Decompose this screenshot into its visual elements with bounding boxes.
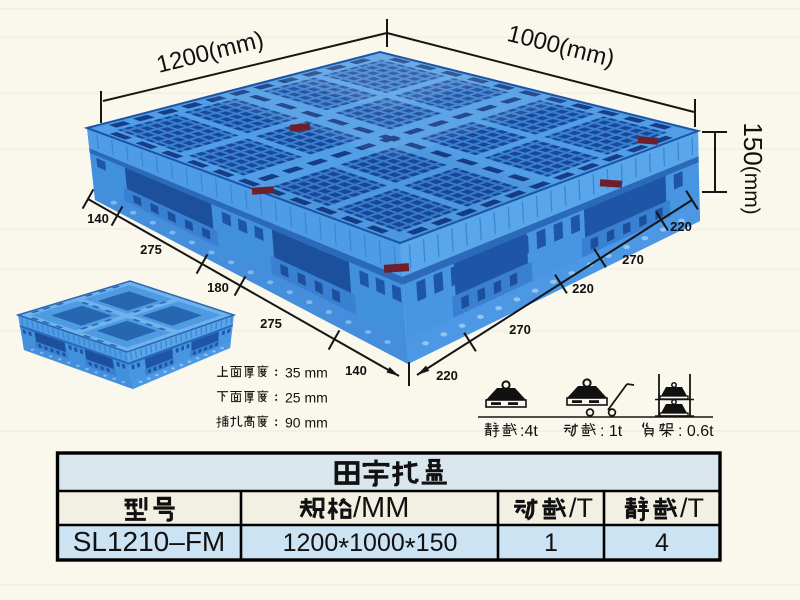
svg-text:220: 220 [670, 219, 692, 234]
svg-text:90 mm: 90 mm [285, 415, 328, 431]
svg-text:: 1t: : 1t [600, 423, 623, 440]
svg-text:/MM: /MM [353, 492, 409, 524]
svg-text:/T: /T [569, 493, 593, 523]
svg-text:140: 140 [87, 211, 109, 226]
svg-text:220: 220 [436, 368, 458, 383]
svg-text:150(mm): 150(mm) [738, 122, 768, 214]
svg-text:275: 275 [140, 242, 162, 257]
svg-text:: 0.6t: : 0.6t [678, 423, 714, 440]
svg-text::4t: :4t [520, 423, 538, 440]
svg-text:4: 4 [655, 529, 669, 557]
svg-text:SL1210–FM: SL1210–FM [73, 526, 226, 557]
svg-text:/T: /T [680, 493, 704, 523]
svg-text:180: 180 [207, 280, 229, 295]
svg-text:275: 275 [260, 316, 282, 331]
svg-text:270: 270 [622, 252, 644, 267]
svg-text:220: 220 [572, 281, 594, 296]
svg-text:35 mm: 35 mm [285, 365, 328, 381]
svg-text:270: 270 [509, 322, 531, 337]
svg-text:140: 140 [345, 363, 367, 378]
svg-text:1: 1 [544, 529, 558, 557]
svg-text:25 mm: 25 mm [285, 390, 328, 406]
